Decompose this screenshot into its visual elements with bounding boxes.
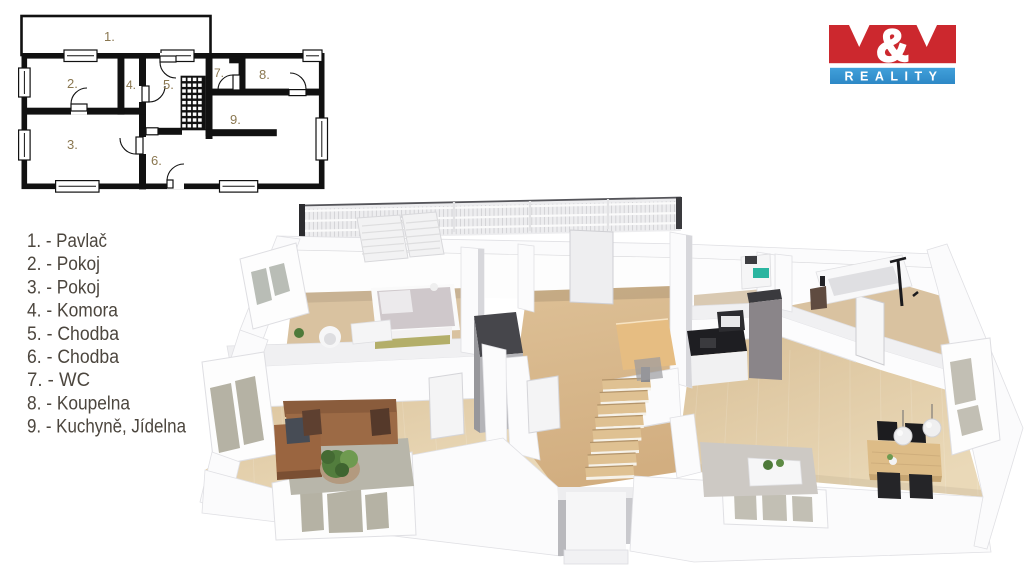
svg-text:1. - Pavlač: 1. - Pavlač [27,231,107,252]
svg-text:REALITY: REALITY [845,70,944,84]
svg-text:4.: 4. [126,78,136,92]
svg-text:4. - Komora: 4. - Komora [27,301,118,322]
svg-text:7. - WC: 7. - WC [27,370,90,391]
svg-text:6.: 6. [151,153,162,168]
svg-text:8. - Koupelna: 8. - Koupelna [27,393,130,414]
svg-text:6. - Chodba: 6. - Chodba [27,347,119,368]
svg-text:8.: 8. [259,67,270,82]
svg-text:9.: 9. [230,112,241,127]
svg-text:&: & [876,20,909,71]
svg-text:2.: 2. [67,76,78,91]
svg-text:1.: 1. [104,29,115,44]
svg-text:7.: 7. [214,66,224,80]
svg-text:3.: 3. [67,137,78,152]
svg-text:5. - Chodba: 5. - Chodba [27,324,119,345]
svg-text:2. - Pokoj: 2. - Pokoj [27,254,100,275]
svg-text:9. - Kuchyně, Jídelna: 9. - Kuchyně, Jídelna [27,417,186,438]
svg-text:5.: 5. [163,77,174,92]
svg-text:3. - Pokoj: 3. - Pokoj [27,277,100,298]
